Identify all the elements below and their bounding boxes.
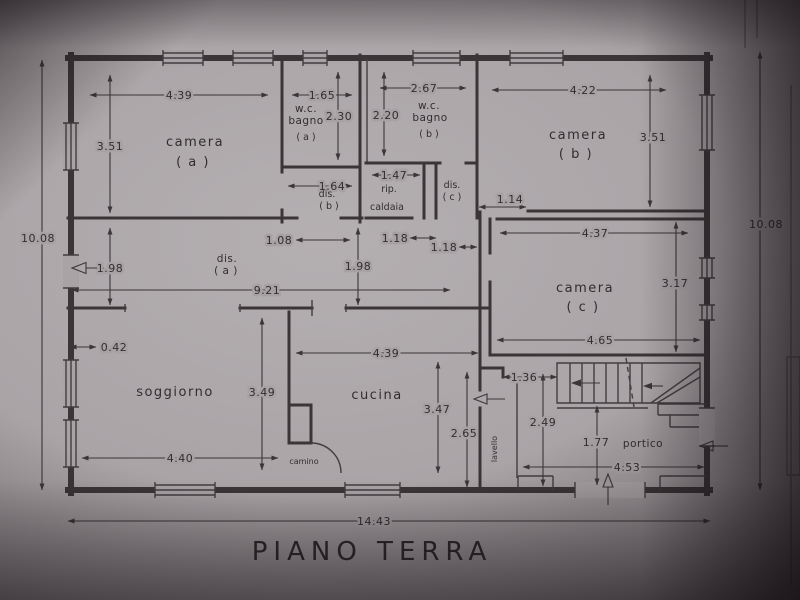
dim-outer-bottom: 14.43: [357, 515, 391, 528]
dim-caldaia-width: 1.47: [381, 169, 408, 182]
dim-camera-b-width: 4.22: [570, 84, 597, 97]
dim-corridor-height: 1.98: [97, 262, 124, 275]
room-dis-b-tag: ( b ): [319, 201, 338, 212]
room-camera-a-tag: ( a ): [176, 155, 210, 170]
dim-lavello-passage: 1.36: [511, 371, 538, 384]
dim-camera-b-height: 3.51: [640, 131, 667, 144]
floor-plan-drawing: 4.39 3.51 1.65 2.30 2.67 2.20 4.22 3.51 …: [0, 0, 800, 600]
dim-dis-c-opening: 1.18: [431, 241, 458, 254]
room-caldaia: caldaia: [370, 202, 404, 213]
dim-camera-c-top: 4.37: [582, 227, 609, 240]
room-camera-b-tag: ( b ): [559, 147, 593, 162]
dim-cucina-height: 3.47: [424, 403, 451, 416]
room-dis-a: dis.: [217, 253, 237, 265]
dim-dis-b-opening: 1.08: [266, 234, 293, 247]
room-labels: camera ( a ) w.c. bagno ( a ) w.c. bagno…: [136, 100, 663, 466]
dim-camera-a-height: 3.51: [97, 140, 124, 153]
dim-cucina-right: 2.65: [451, 427, 478, 440]
room-camera-b: camera: [549, 128, 607, 143]
room-dis-c: dis.: [444, 180, 461, 191]
room-camera-a: camera: [166, 135, 224, 150]
room-soggiorno: soggiorno: [136, 385, 214, 400]
room-bagno-a-tag: ( a ): [296, 132, 315, 143]
dim-bagno-a-width: 1.65: [309, 89, 336, 102]
room-dis-a-tag: ( a ): [214, 265, 238, 277]
dim-soggiorno-height: 3.49: [249, 386, 276, 399]
dim-outer-right: 10.08: [749, 218, 783, 231]
dim-camera-c-right: 3.17: [662, 277, 689, 290]
dim-caldaia-opening: 1.18: [382, 232, 409, 245]
dim-cucina-width: 4.39: [373, 347, 400, 360]
dim-portico-stair: 1.77: [583, 436, 610, 449]
page-title: PIANO TERRA: [252, 537, 492, 567]
room-bagno-a: bagno: [288, 115, 323, 127]
room-portico: portico: [623, 438, 663, 450]
dim-camera-c-bottom: 4.65: [587, 334, 614, 347]
dim-bagno-b-height: 2.20: [373, 109, 400, 122]
dim-wall-jog: 0.42: [101, 341, 128, 354]
room-bagno-b-wc: w.c.: [418, 100, 440, 112]
room-bagno-a-wc: w.c.: [295, 103, 317, 115]
room-camera-c: camera: [556, 281, 614, 296]
room-lavello: lavello: [490, 436, 499, 462]
dim-dis-c-passage: 1.14: [497, 193, 524, 206]
room-cucina: cucina: [351, 388, 402, 403]
dim-portico-width: 4.53: [614, 461, 641, 474]
passage-arrow-icon: [474, 394, 487, 404]
room-caldaia-rip: rip.: [381, 184, 397, 195]
room-dis-b: dis.: [319, 189, 336, 200]
stair-down-arrow-icon: [571, 379, 581, 386]
room-bagno-b-tag: ( b ): [419, 129, 438, 140]
dim-outer-left: 10.08: [21, 232, 55, 245]
dimension-labels: 4.39 3.51 1.65 2.30 2.67 2.20 4.22 3.51 …: [21, 82, 783, 528]
room-bagno-b: bagno: [412, 112, 447, 124]
dimension-lines: [42, 52, 760, 521]
floor-plan-photo: 4.39 3.51 1.65 2.30 2.67 2.20 4.22 3.51 …: [0, 0, 800, 600]
dim-soggiorno-width: 4.40: [167, 452, 194, 465]
dim-bagno-a-height: 2.30: [326, 110, 353, 123]
dim-bagno-b-width: 2.67: [411, 82, 438, 95]
dim-camera-a-width: 4.39: [166, 89, 193, 102]
dim-lavello-height: 2.49: [530, 416, 557, 429]
adjacent-sheet-lines: [745, 0, 800, 585]
stairs: [557, 358, 707, 427]
room-camera-c-tag: ( c ): [566, 300, 599, 315]
dim-corridor-length: 9.21: [254, 284, 281, 297]
stair-down-arrow-icon: [643, 383, 652, 389]
room-camino: camino: [289, 457, 318, 466]
dim-corridor-height-2: 1.98: [345, 260, 372, 273]
room-dis-c-tag: ( c ): [443, 192, 462, 203]
